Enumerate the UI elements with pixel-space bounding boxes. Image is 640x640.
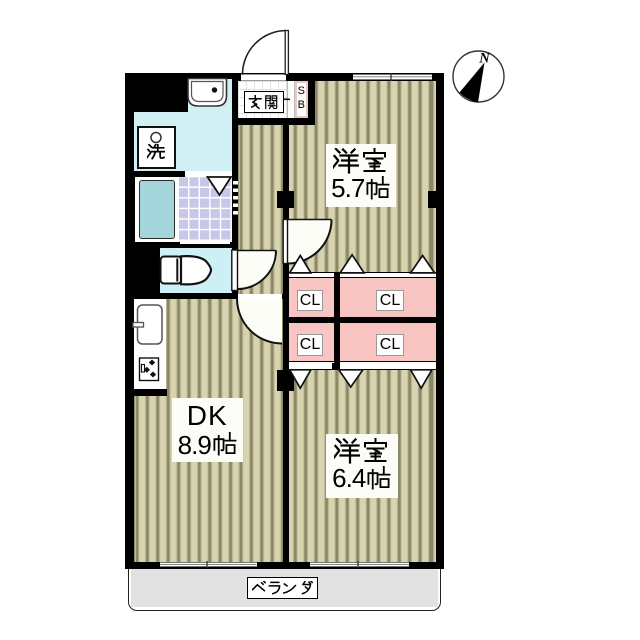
svg-text:N: N [478, 51, 490, 67]
